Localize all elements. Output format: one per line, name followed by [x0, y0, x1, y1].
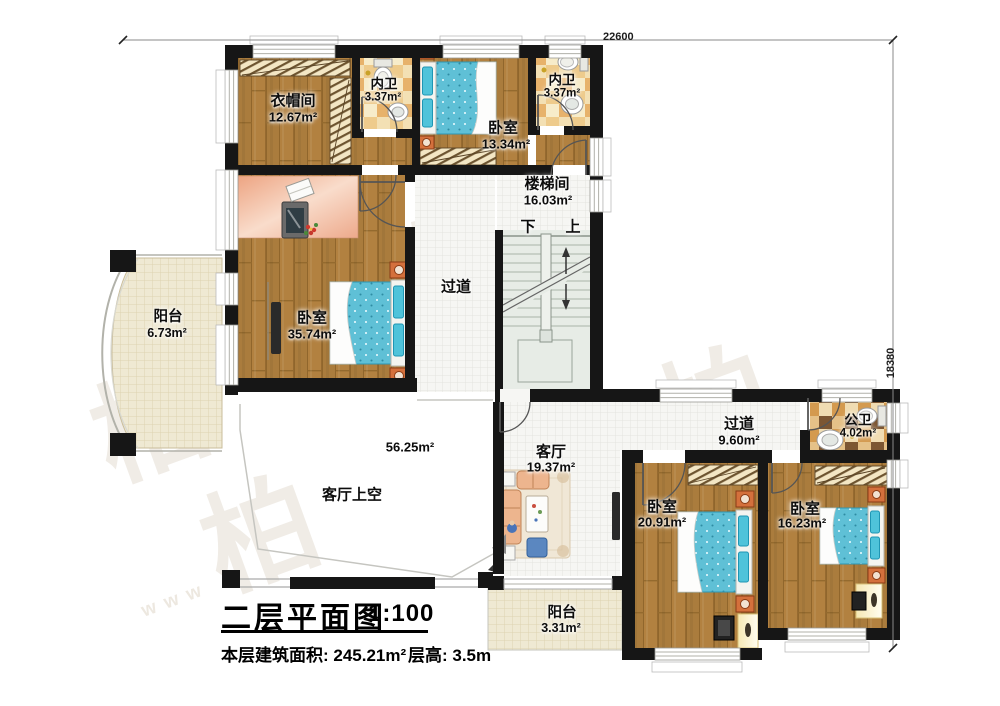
room-label-balcony-west: 阳台: [154, 310, 183, 325]
lamp-icon: [745, 623, 751, 637]
toilet-icon: [878, 406, 886, 426]
room-label-corridor-east: 过道: [724, 417, 754, 432]
coffee-table: [526, 496, 548, 532]
room-area-bedroom-north: 13.34m²: [482, 138, 530, 151]
room-label-bedroom-master: 卧室: [297, 311, 327, 326]
plan-floor-area: 本层建筑面积: 245.21m²: [221, 641, 406, 666]
room-area-living-room: 19.37m²: [527, 461, 575, 474]
door-opening: [500, 389, 530, 402]
door-handle-icon: [366, 71, 371, 76]
dimension-height: 18380: [885, 348, 897, 379]
room-area-bedroom-master: 35.74m²: [288, 328, 336, 341]
living-room-sofa-set: [498, 470, 570, 560]
room-label-cloakroom: 衣帽间: [270, 94, 315, 109]
room-label-balcony-south: 阳台: [548, 606, 577, 621]
cloak-vestibule-floor: [352, 137, 412, 165]
room-area-balcony-south: 3.31m²: [541, 622, 581, 635]
room-label-bedroom-north: 卧室: [488, 121, 518, 136]
plan-floor-height: 层高: 3.5m: [408, 641, 491, 666]
title-underline: [221, 630, 428, 633]
lamp-icon: [871, 593, 877, 607]
door-handle-icon: [542, 68, 547, 73]
plan-scale: 1:100: [368, 600, 434, 628]
room-label-bedroom-southwest: 卧室: [647, 500, 677, 515]
stair-up-label: 上: [565, 220, 580, 235]
room-label-corridor-west: 过道: [441, 280, 471, 295]
room-area-balcony-west: 6.73m²: [147, 327, 187, 340]
master-desk: [238, 176, 358, 238]
room-area-bedroom-southwest: 20.91m²: [638, 516, 686, 529]
room-area-stairwell: 16.03m²: [524, 194, 572, 207]
floorplan-page: 柏 柏 www 柏 柏 www 柏 柏: [0, 0, 1000, 706]
handrail-stub: [540, 330, 552, 342]
room-area-corridor-east: 9.60m²: [718, 434, 759, 447]
room-area-public-bath: 4.02m²: [840, 428, 876, 440]
stair-down-label: 下: [520, 220, 535, 235]
room-label-living-room: 客厅: [536, 445, 566, 460]
room-area-ensuite-bath-1: 3.37m²: [365, 92, 401, 104]
toilet-icon: [374, 59, 392, 67]
corridor-east-floor: [618, 402, 800, 450]
room-area-cloakroom: 12.67m²: [269, 111, 317, 124]
floorplan-canvas: [0, 0, 1000, 706]
tv-icon: [852, 592, 866, 610]
armchair: [527, 538, 547, 557]
room-area-bedroom-southeast: 16.23m²: [778, 517, 826, 530]
room-label-stairwell: 楼梯间: [524, 177, 569, 192]
dimension-width: 22600: [603, 31, 634, 43]
room-area-ensuite-bath-2: 3.37m²: [544, 88, 580, 100]
room-label-public-bath: 公卫: [845, 413, 872, 427]
room-label-ensuite-bath-1: 内卫: [371, 77, 398, 91]
living-tv-icon: [612, 492, 620, 540]
room-label-bedroom-southeast: 卧室: [790, 502, 820, 517]
room-area-living-void: 56.25m²: [386, 441, 434, 454]
balcony-west-floor: [112, 258, 222, 448]
room-label-ensuite-bath-2: 内卫: [549, 73, 576, 87]
room-label-living-void: 客厅上空: [322, 488, 382, 503]
